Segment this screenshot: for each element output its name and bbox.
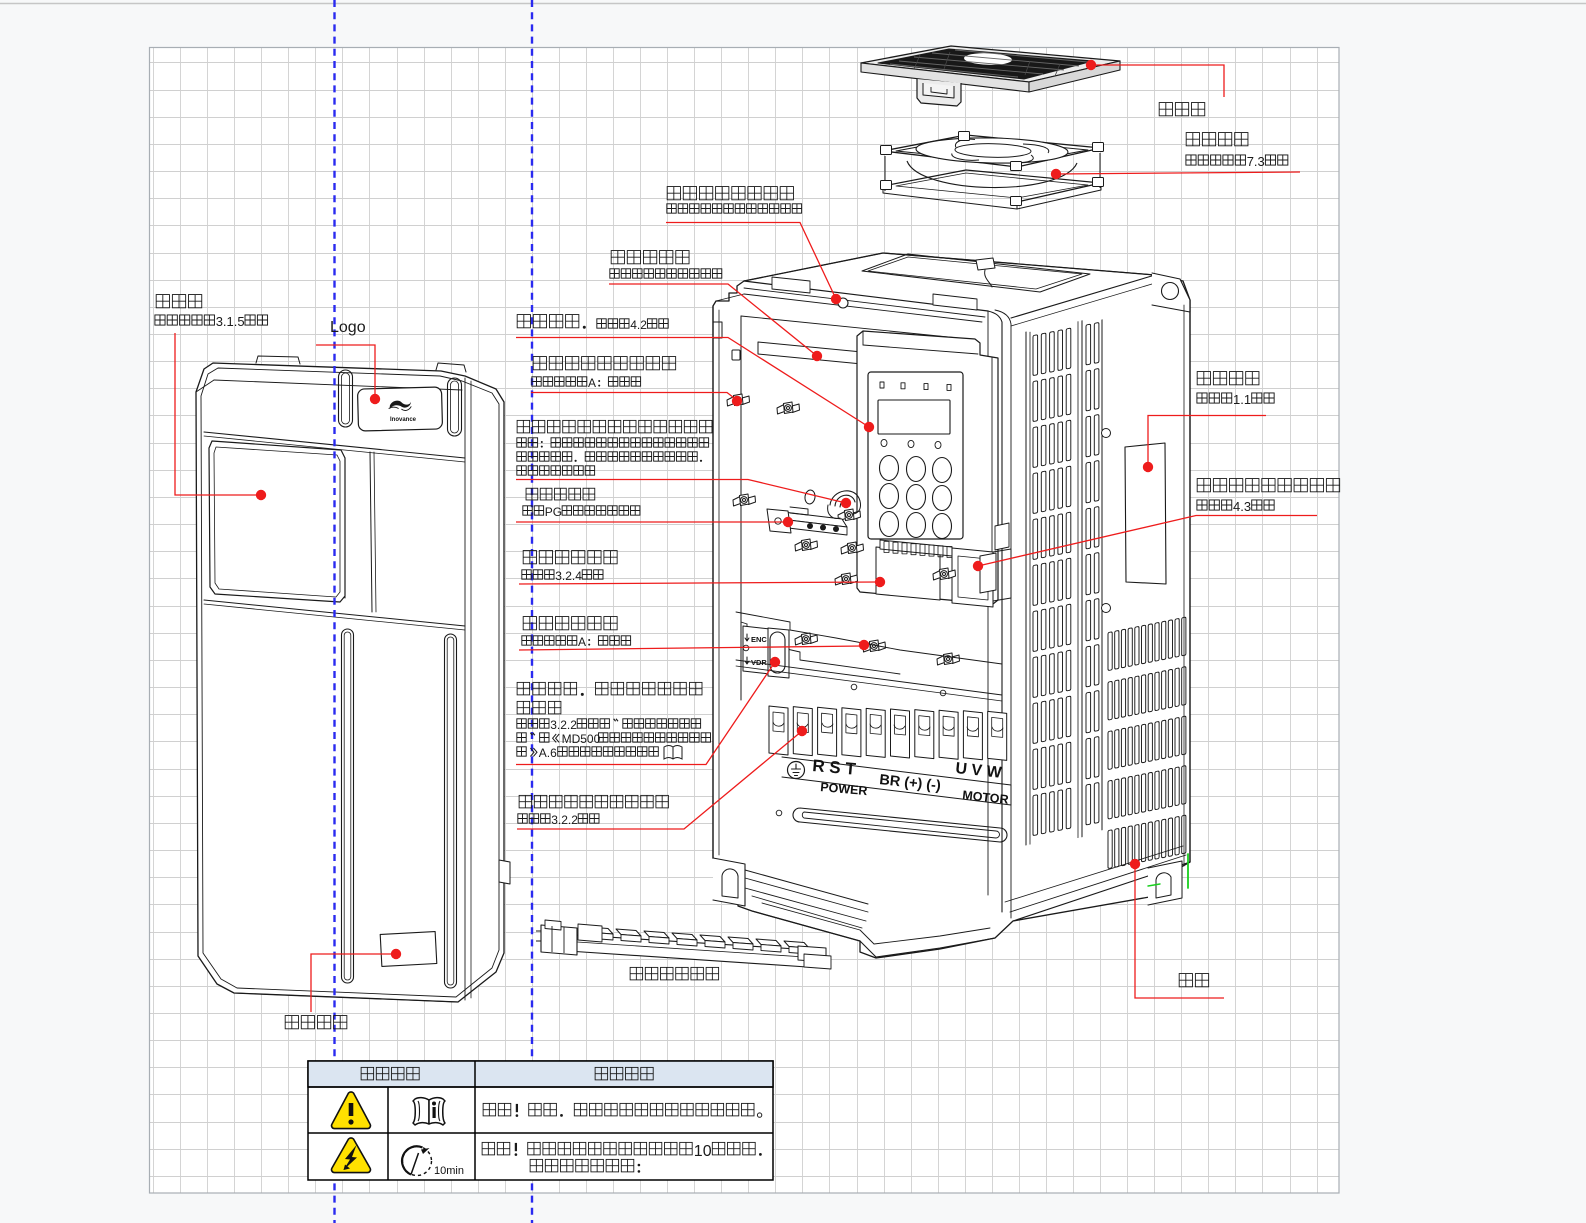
svg-text:3.2.4: 3.2.4 <box>555 569 582 583</box>
svg-text:A: A <box>588 376 596 390</box>
svg-text:10min: 10min <box>434 1165 464 1177</box>
svg-text:3.2.2: 3.2.2 <box>550 718 577 732</box>
svg-text:Logo: Logo <box>330 319 366 336</box>
svg-text:4.3: 4.3 <box>1233 499 1251 514</box>
svg-text:7.3: 7.3 <box>1247 154 1265 169</box>
svg-text:3.1.5: 3.1.5 <box>216 314 245 329</box>
svg-text:10: 10 <box>694 1143 712 1160</box>
svg-text:3.2.2: 3.2.2 <box>551 813 578 827</box>
svg-text:MD500: MD500 <box>562 732 601 746</box>
svg-text:ENC: ENC <box>751 635 767 644</box>
svg-text:A: A <box>578 635 586 649</box>
svg-text:R S T: R S T <box>812 756 858 779</box>
svg-text:PG: PG <box>545 505 562 519</box>
svg-text:1.1: 1.1 <box>1233 392 1251 407</box>
svg-text:Inovance: Inovance <box>390 417 417 423</box>
svg-text:4.2: 4.2 <box>630 318 647 332</box>
svg-text:A.6: A.6 <box>539 746 557 760</box>
